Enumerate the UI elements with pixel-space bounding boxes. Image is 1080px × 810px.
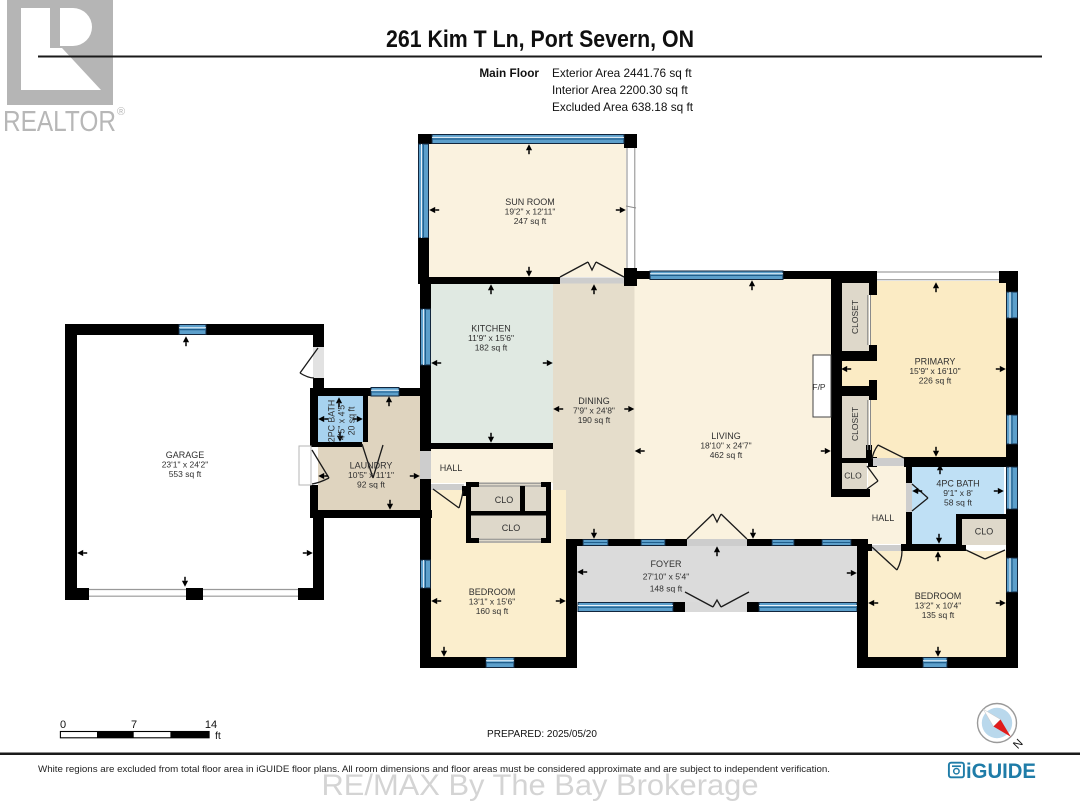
svg-text:27'10" x 5'4": 27'10" x 5'4" [643,572,690,582]
svg-text:CLO: CLO [502,523,521,533]
svg-text:iGUIDE: iGUIDE [966,759,1036,783]
svg-text:Main Floor: Main Floor [479,66,539,80]
svg-text:2PC BATH: 2PC BATH [327,400,337,442]
svg-text:SUN ROOM: SUN ROOM [505,197,555,207]
svg-text:Interior Area 2200.30 sq ft: Interior Area 2200.30 sq ft [552,83,688,97]
svg-text:20 sq ft: 20 sq ft [347,406,357,435]
svg-text:4'5" x 4'5": 4'5" x 4'5" [337,402,347,440]
svg-text:Exterior Area 2441.76 sq ft: Exterior Area 2441.76 sq ft [552,66,692,80]
svg-text:RE/MAX By The Bay Brokerage: RE/MAX By The Bay Brokerage [322,769,759,802]
svg-text:261 Kim T Ln, Port Severn, ON: 261 Kim T Ln, Port Severn, ON [386,26,694,53]
svg-text:19'2" x 12'11": 19'2" x 12'11" [505,207,556,217]
svg-text:ft: ft [215,730,221,742]
svg-text:PREPARED: 2025/05/20: PREPARED: 2025/05/20 [487,729,597,740]
svg-text:F/P: F/P [812,382,826,392]
svg-text:92 sq ft: 92 sq ft [357,480,386,490]
svg-text:CLOSET: CLOSET [850,300,860,334]
svg-text:182 sq ft: 182 sq ft [475,343,508,353]
svg-text:CLO: CLO [975,527,994,537]
svg-text:BEDROOM: BEDROOM [915,591,962,601]
svg-text:GARAGE: GARAGE [166,450,205,460]
svg-text:10'5" x 11'1": 10'5" x 11'1" [348,470,394,480]
svg-text:N: N [1010,736,1024,750]
svg-text:FOYER: FOYER [650,559,682,569]
svg-text:23'1" x 24'2": 23'1" x 24'2" [162,460,209,470]
svg-text:9'1" x 8': 9'1" x 8' [943,488,973,498]
svg-text:DINING: DINING [578,396,610,406]
svg-text:LAUNDRY: LAUNDRY [350,461,393,471]
svg-text:190 sq ft: 190 sq ft [578,415,611,425]
svg-text:7'9" x 24'8": 7'9" x 24'8" [573,406,615,416]
svg-text:58 sq ft: 58 sq ft [944,498,973,508]
svg-text:CLO: CLO [844,471,862,481]
svg-text:HALL: HALL [872,513,895,523]
svg-text:HALL: HALL [440,463,463,473]
svg-text:135 sq ft: 135 sq ft [922,610,955,620]
svg-text:KITCHEN: KITCHEN [471,324,511,334]
svg-text:CLOSET: CLOSET [850,407,860,441]
svg-text:Excluded Area 638.18 sq ft: Excluded Area 638.18 sq ft [552,100,694,114]
svg-text:15'9" x 16'10": 15'9" x 16'10" [909,366,960,376]
svg-text:553 sq ft: 553 sq ft [169,469,202,479]
svg-text:0: 0 [60,719,66,731]
svg-text:13'2" x 10'4": 13'2" x 10'4" [915,601,962,611]
svg-text:REALTOR: REALTOR [3,106,116,138]
svg-text:CLO: CLO [495,495,514,505]
svg-text:18'10" x 24'7": 18'10" x 24'7" [700,441,751,451]
svg-text:226 sq ft: 226 sq ft [919,376,952,386]
svg-text:462 sq ft: 462 sq ft [710,450,743,460]
svg-text:4PC BATH: 4PC BATH [936,479,979,489]
svg-text:11'9" x 15'6": 11'9" x 15'6" [468,333,514,343]
svg-text:®: ® [117,106,125,118]
svg-text:BEDROOM: BEDROOM [469,587,516,597]
svg-text:7: 7 [131,719,137,731]
svg-text:LIVING: LIVING [711,431,741,441]
svg-text:13'1" x 15'6": 13'1" x 15'6" [469,597,516,607]
svg-text:160 sq ft: 160 sq ft [476,606,509,616]
svg-text:PRIMARY: PRIMARY [915,357,956,367]
svg-text:247 sq ft: 247 sq ft [514,216,547,226]
svg-text:148 sq ft: 148 sq ft [650,584,683,594]
